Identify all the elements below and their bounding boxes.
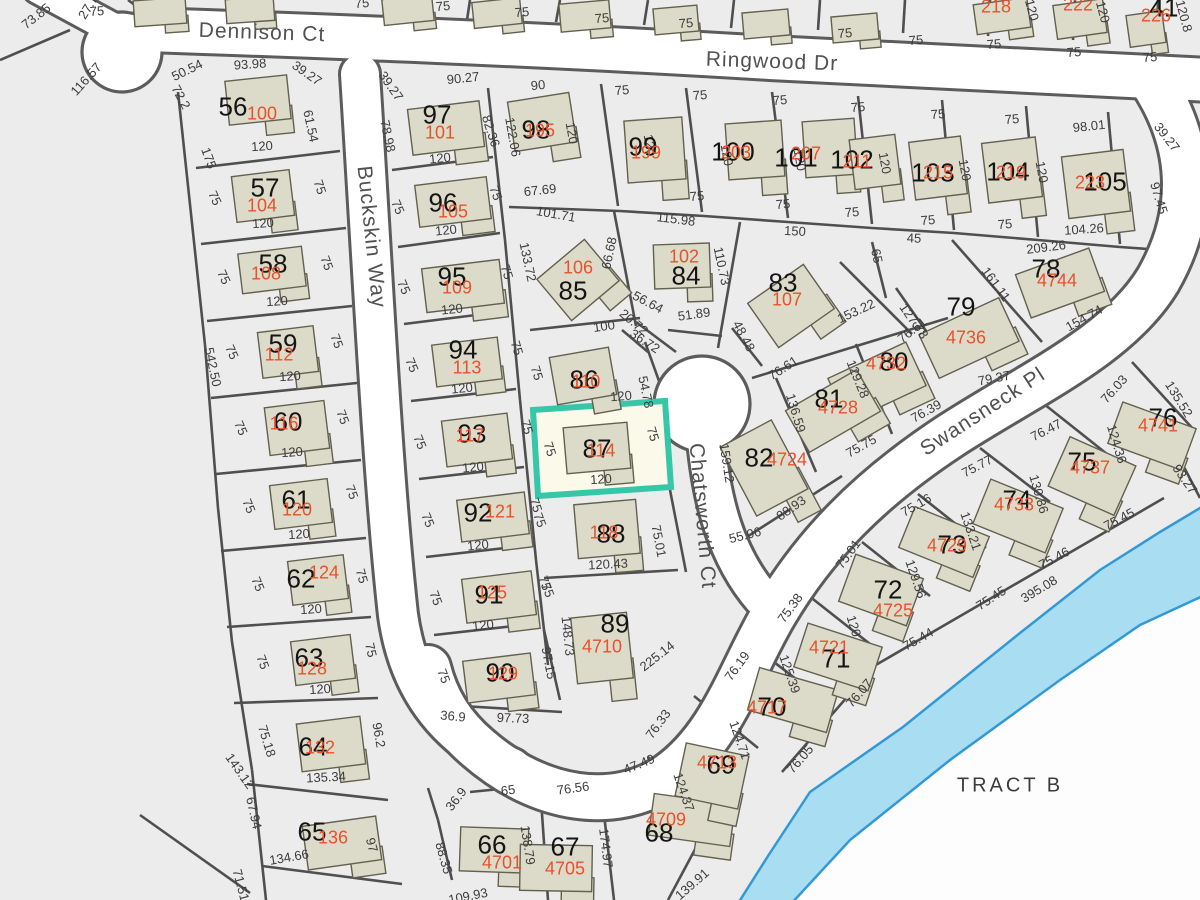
parcel-boundary [505,240,520,400]
parcel-boundary [398,233,500,247]
building-footprint [849,134,904,205]
parcel-boundary [178,92,205,345]
parcel-boundary [428,788,438,820]
parcel-boundary [247,784,388,800]
building-footprint [238,246,310,306]
building-footprint [270,478,336,543]
building-footprint [1126,11,1169,58]
building-footprint [257,326,322,393]
parcel-boundary [232,642,252,770]
parcel-boundary [670,490,686,572]
building-footprint [296,716,369,787]
parcel-boundary [467,0,470,20]
parcel-boundary [731,0,734,28]
building-footprint [574,499,644,576]
parcel-map-canvas[interactable] [0,0,1200,900]
parcel-boundary [544,570,678,578]
parcel-boundary [620,211,704,216]
parcel-boundary [227,617,371,627]
parcel-boundary [0,30,70,60]
parcel-boundary [644,0,648,25]
parcel-boundary [1038,240,1120,247]
building-footprint [225,75,295,139]
parcel-boundary [544,630,560,700]
building-footprint [264,400,333,470]
building-footprint [748,263,846,362]
building-footprint [653,243,713,303]
parcel-boundary [234,698,378,703]
parcel-boundary [732,328,762,366]
building-footprint [407,101,488,170]
building-footprint [291,634,359,699]
building-footprint [1061,149,1134,238]
building-footprint [744,668,841,747]
parcel-boundary [438,820,452,880]
parcel-boundary [221,538,366,551]
parcel-boundary [530,318,640,330]
building-footprint [519,844,594,900]
building-footprint [982,137,1047,222]
building-footprint [1053,0,1110,50]
parcel-boundary [509,207,620,211]
parcel-boundary [954,233,1038,240]
building-footprint [231,169,298,237]
building-footprint [725,120,788,198]
parcel-boundary [207,306,352,321]
parcel-boundary [614,211,636,326]
parcel-boundary [196,151,340,168]
parcel-boundary [140,815,250,893]
parcel-boundary [601,84,618,206]
building-footprint [833,554,925,641]
building-footprint [624,117,689,203]
parcel-boundary [872,228,954,233]
building-footprint [457,492,533,556]
parcel-boundary [252,770,266,900]
parcel-boundary [668,330,722,336]
parcel-boundary [903,0,905,33]
parcel-boundary [718,222,740,348]
parcel-boundary [216,460,361,474]
building-footprint [432,337,506,400]
parcel-boundary [218,508,232,642]
building-footprint [507,92,580,167]
building-footprint [909,136,971,219]
parcel-boundary [818,0,820,30]
parcel-map-viewport[interactable]: 73.8527.7116.5750.5493.9839.2772.261.541… [0,0,1200,900]
building-footprint [288,555,352,620]
building-footprint [415,177,495,241]
parcel-boundary [622,330,648,352]
building-footprint [973,0,1034,44]
parcel-boundary [788,222,872,228]
parcel-boundary [840,262,912,334]
parcel-boundary [205,345,218,508]
building-footprint [571,612,637,705]
parcel-boundary [704,216,788,222]
parcel-boundary [211,383,357,398]
road-surface [148,30,1200,80]
parcel-boundary [872,242,886,298]
